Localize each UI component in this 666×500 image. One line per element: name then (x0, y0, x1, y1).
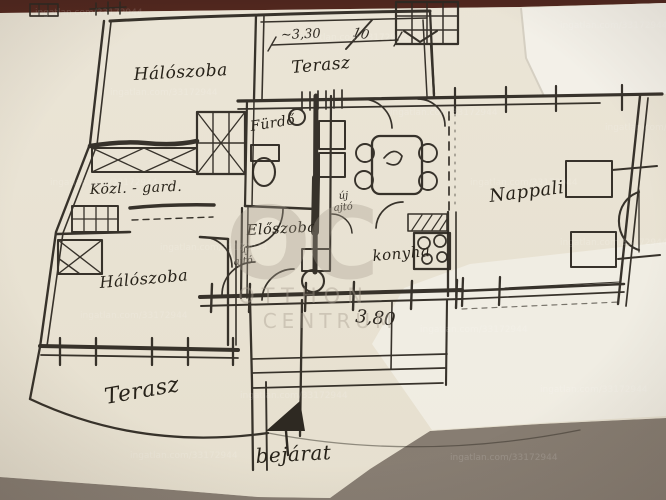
floor-plan-photo: Hálószoba Terasz Fürdő Közl. - gard. Elő… (0, 0, 666, 500)
photo-vignette (0, 0, 666, 500)
floor-plan-canvas: Hálószoba Terasz Fürdő Közl. - gard. Elő… (0, 0, 666, 500)
